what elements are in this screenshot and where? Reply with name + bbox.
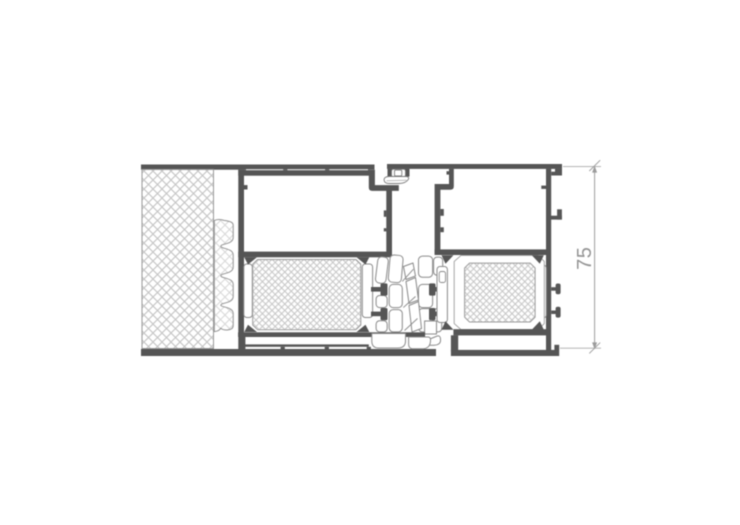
svg-text:75: 75: [574, 247, 596, 270]
